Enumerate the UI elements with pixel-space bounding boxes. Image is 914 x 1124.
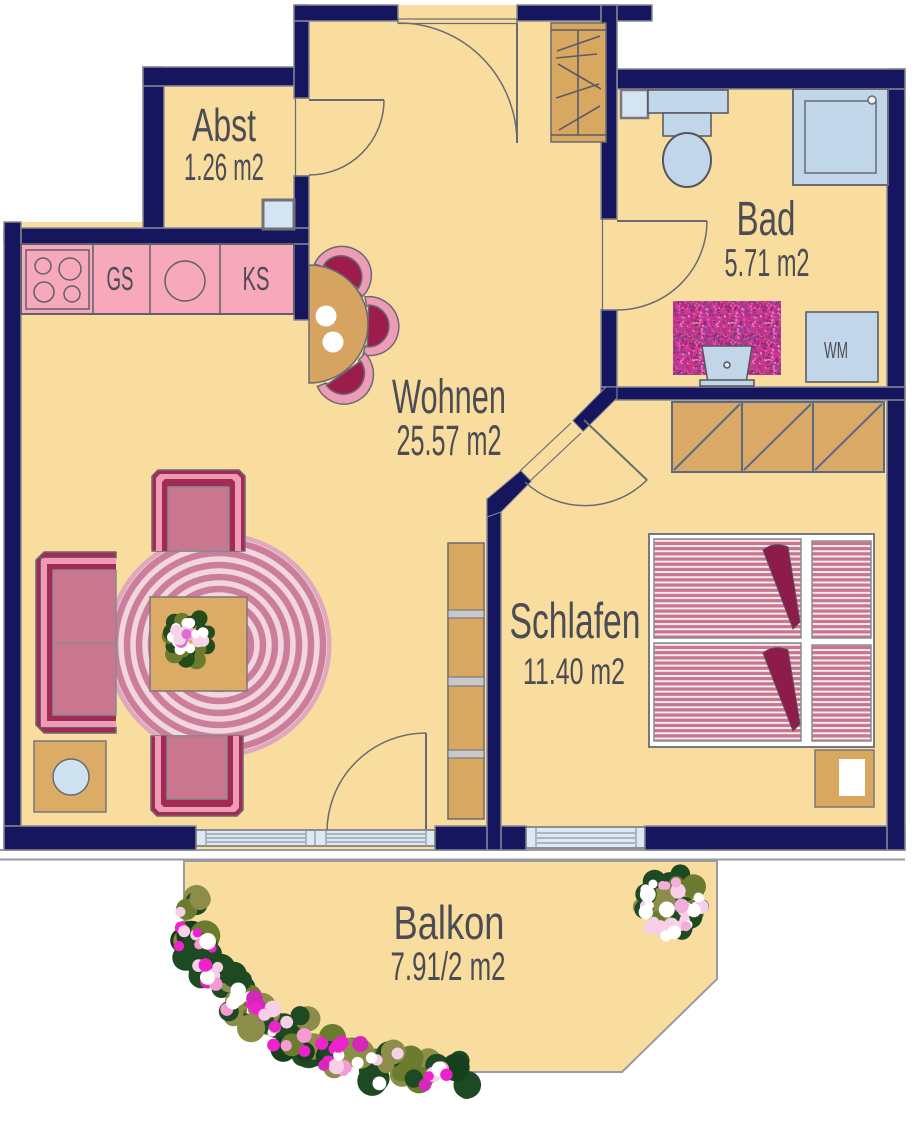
svg-text:KS: KS [243,260,270,297]
svg-text:Balkon: Balkon [394,896,505,949]
svg-text:Schlafen: Schlafen [510,593,641,649]
svg-text:GS: GS [107,260,134,297]
svg-text:11.40 m2: 11.40 m2 [523,651,625,692]
svg-text:7.91/2 m2: 7.91/2 m2 [391,945,506,989]
svg-text:5.71 m2: 5.71 m2 [725,242,810,285]
svg-text:1.26 m2: 1.26 m2 [184,147,264,189]
svg-text:Abst: Abst [192,99,256,151]
svg-text:WM: WM [824,337,848,363]
svg-text:25.57 m2: 25.57 m2 [397,417,502,465]
svg-text:Bad: Bad [737,193,796,246]
